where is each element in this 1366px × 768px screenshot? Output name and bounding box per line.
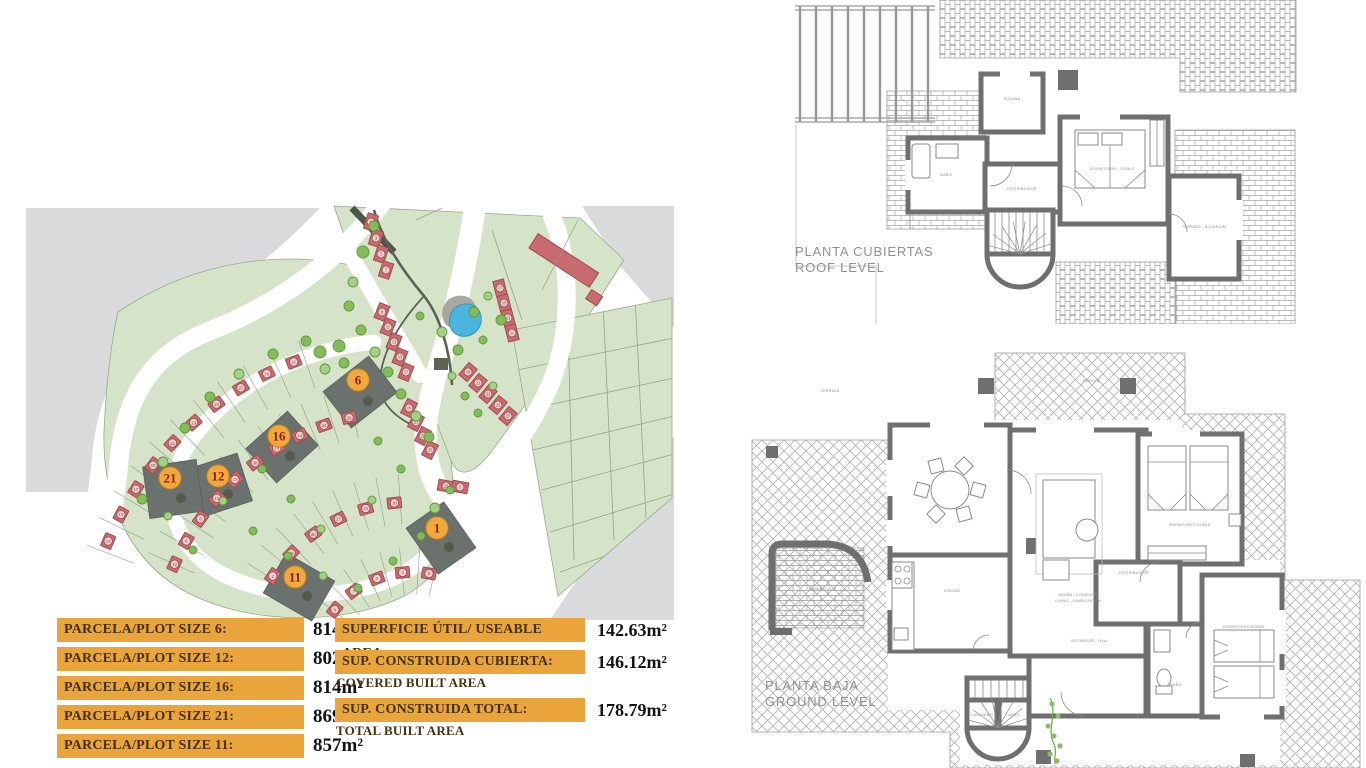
svg-text:21: 21	[476, 381, 480, 386]
room-label: RECIBIDOR - HALL	[1071, 639, 1108, 643]
svg-text:11: 11	[289, 570, 301, 585]
tree-icon	[370, 347, 380, 357]
plot-tree-icon	[363, 396, 373, 406]
plot-number-badge: 11	[284, 566, 306, 588]
tree-icon	[348, 277, 358, 287]
room-label: TERRAZA	[820, 389, 839, 393]
tree-icon	[164, 512, 172, 520]
tree-icon	[249, 527, 257, 535]
svg-text:23: 23	[191, 420, 196, 425]
house-marker: 8	[421, 567, 437, 580]
roof-plane-bottom	[1056, 262, 1176, 324]
tree-icon	[180, 423, 190, 433]
plot-number-badge: 16	[268, 425, 290, 447]
tree-icon	[284, 552, 292, 560]
tree-icon	[417, 532, 425, 540]
area-sublabel: TOTAL BUILT AREA	[336, 723, 705, 738]
boundary-steps	[796, 125, 876, 324]
room-label: DORMITORIO DOBLE	[1169, 523, 1211, 527]
svg-text:19: 19	[265, 371, 270, 376]
ground-plan: PORCHETERRAZACOCINASALÓN - COMEDORLIVING…	[740, 330, 1366, 768]
tree-icon	[453, 345, 463, 355]
area-label: SUPERFICIE ÚTIL/ USEABLE AREA:	[335, 618, 585, 642]
tree-icon	[301, 336, 311, 346]
tree-icon	[484, 292, 492, 300]
tree-icon	[430, 503, 440, 513]
svg-text:21: 21	[291, 360, 296, 365]
tree-icon	[397, 465, 405, 473]
roof-stairs-box	[987, 210, 1053, 254]
svg-text:11: 11	[510, 331, 514, 336]
area-value: 178.79m²	[585, 698, 667, 722]
tree-icon	[356, 325, 366, 335]
tree-icon	[383, 367, 393, 377]
svg-text:13: 13	[106, 539, 111, 544]
tree-icon	[437, 327, 447, 337]
site-plan-map: 1315171922232527192112861513301814242622…	[22, 200, 678, 622]
svg-text:24: 24	[322, 423, 327, 428]
tree-icon	[137, 494, 147, 504]
ground-room-entrance	[1029, 656, 1146, 716]
svg-text:19: 19	[151, 463, 156, 468]
area-sublabel: COVERED BUILT AREA	[336, 675, 705, 690]
tree-icon	[416, 312, 424, 320]
house-marker: 3	[395, 566, 410, 578]
tree-icon	[474, 409, 482, 417]
tree-icon	[320, 364, 330, 374]
ground-plan-subtitle: GROUND LEVEL	[765, 694, 876, 709]
plot-tree-icon	[444, 542, 454, 552]
plot-number-badge: 21	[159, 467, 181, 489]
tree-icon	[319, 572, 327, 580]
tree-icon	[479, 336, 487, 344]
plot-size-label: PARCELA/PLOT SIZE 11:	[57, 734, 304, 758]
tree-icon	[333, 340, 345, 352]
svg-text:10: 10	[392, 501, 397, 506]
room-label: LIVING - DINING ROOM	[1055, 599, 1101, 603]
tree-icon	[268, 349, 278, 359]
tree-icon	[469, 307, 479, 317]
tree-icon	[344, 301, 354, 311]
room-label: ASEO	[1008, 713, 1019, 717]
roof-spiral-stair	[987, 254, 1053, 287]
plot-number-badge: 12	[207, 465, 229, 487]
built-areas-table: SUPERFICIE ÚTIL/ USEABLE AREA:142.63m² S…	[335, 618, 705, 746]
ground-plan-title: PLANTA BAJA	[765, 678, 859, 693]
room-label: LAVADERO	[971, 713, 993, 717]
svg-text:25: 25	[363, 506, 368, 511]
svg-text:27: 27	[239, 386, 244, 391]
svg-text:1: 1	[459, 485, 461, 490]
area-value: 142.63m²	[585, 618, 667, 642]
room-label: DORMITORIO DOBLE	[1223, 625, 1265, 629]
plot-size-label: PARCELA/PLOT SIZE 6:	[57, 618, 304, 642]
svg-text:11: 11	[386, 325, 390, 330]
tree-icon	[424, 432, 434, 442]
room-label: SALÓN - COMEDOR	[1058, 592, 1097, 597]
svg-text:15: 15	[119, 512, 124, 517]
tree-icon	[357, 246, 369, 258]
svg-text:12: 12	[212, 469, 225, 484]
plot-size-label: PARCELA/PLOT SIZE 12:	[57, 647, 304, 671]
tree-icon	[258, 465, 266, 473]
tree-icon	[314, 346, 326, 358]
area-label: SUP. CONSTRUIDA CUBIERTA:	[335, 650, 585, 674]
area-row: SUP. CONSTRUIDA TOTAL:178.79m² TOTAL BUI…	[335, 698, 705, 738]
plot-tree-icon	[285, 451, 295, 461]
tree-icon	[461, 392, 469, 400]
area-label: SUP. CONSTRUIDA TOTAL:	[335, 698, 585, 722]
plot-tree-icon	[176, 493, 186, 503]
tree-icon	[287, 495, 295, 503]
tree-icon	[446, 486, 454, 494]
tree-icon	[411, 411, 421, 421]
ground-stairs-box	[967, 678, 1029, 700]
house-marker: 10	[387, 497, 402, 509]
svg-text:17: 17	[134, 487, 139, 492]
svg-text:16: 16	[273, 429, 287, 444]
roof-chimney	[1058, 70, 1078, 90]
svg-text:1: 1	[434, 521, 441, 536]
tree-icon	[317, 525, 325, 533]
tree-icon	[219, 497, 227, 505]
room-label: BAÑO	[940, 172, 952, 177]
tree-icon	[374, 437, 382, 445]
room-label: DISTRIBUIDOR	[1007, 187, 1037, 191]
room-label: SOLANA	[1004, 97, 1021, 101]
roof-plan-subtitle: ROOF LEVEL	[795, 260, 885, 275]
tree-icon	[189, 546, 197, 554]
svg-text:30: 30	[253, 460, 258, 465]
tree-icon	[158, 457, 168, 467]
roof-room-solana	[981, 74, 1043, 132]
plot-number-badge: 1	[426, 517, 448, 539]
room-label: COCINA	[944, 589, 960, 593]
tree-icon	[489, 382, 497, 390]
tree-icon	[496, 315, 506, 325]
tree-icon	[368, 496, 376, 504]
tree-icon	[396, 389, 406, 399]
svg-text:25: 25	[214, 402, 219, 407]
svg-text:26: 26	[347, 415, 352, 420]
room-label: BARBACOA	[809, 587, 832, 591]
svg-text:27: 27	[336, 517, 341, 522]
room-label: BAÑO	[1170, 682, 1182, 687]
park-pavilion	[434, 358, 448, 370]
area-value: 146.12m²	[585, 650, 667, 674]
tree-icon	[339, 358, 349, 368]
tree-icon	[354, 584, 362, 592]
tree-icon	[369, 221, 379, 231]
svg-text:22: 22	[170, 441, 175, 446]
svg-text:14: 14	[298, 433, 303, 438]
brochure-page: 1315171922232527192112861513301814242622…	[0, 0, 1366, 768]
svg-text:20: 20	[311, 532, 316, 537]
plot-tree-icon	[302, 591, 312, 601]
svg-text:21: 21	[164, 471, 177, 486]
roof-plan-title: PLANTA CUBIERTAS	[795, 244, 934, 259]
svg-text:6: 6	[355, 373, 362, 388]
area-row: SUPERFICIE ÚTIL/ USEABLE AREA:142.63m²	[335, 618, 705, 642]
house-marker: 13	[100, 533, 116, 550]
svg-text:12: 12	[172, 562, 177, 567]
tree-icon	[205, 392, 215, 402]
tree-icon	[234, 369, 244, 379]
svg-text:13: 13	[233, 477, 238, 482]
room-label: DISTRIBUIDOR	[1119, 571, 1149, 575]
roof-plan: SOLANABAÑODISTRIBUIDORDORMITORIO - DOBLE…	[760, 0, 1366, 324]
area-row: SUP. CONSTRUIDA CUBIERTA:146.12m² COVERE…	[335, 650, 705, 690]
tree-icon	[448, 372, 456, 380]
room-label: DORMITORIO - DOBLE	[1090, 167, 1135, 171]
plot-number-badge: 6	[347, 369, 369, 391]
tree-icon	[389, 557, 397, 565]
room-label: TERRAZA - SOLARIUM	[1182, 225, 1226, 229]
plot-size-label: PARCELA/PLOT SIZE 16:	[57, 676, 304, 700]
plot-size-label: PARCELA/PLOT SIZE 21:	[57, 705, 304, 729]
room-label: PORCHE	[1083, 379, 1101, 383]
